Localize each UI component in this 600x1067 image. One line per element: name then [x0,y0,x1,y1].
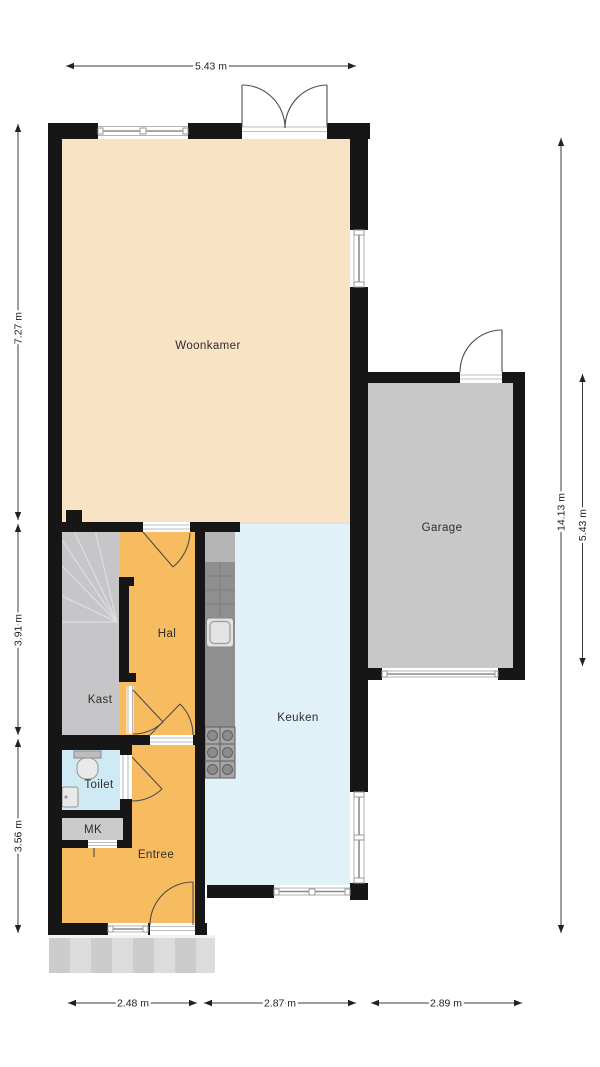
wall-step-notch [66,510,82,523]
room-woonkamer [62,139,350,523]
porch-stripe [175,935,196,973]
label-kast: Kast [88,694,113,706]
dim-label-bottom-3: 2.89 m [430,998,462,1010]
dim-label-left-1: 7.27 m [13,312,25,344]
dim-label-top: 5.43 m [195,61,227,73]
dim-label-right-2: 5.43 m [577,509,589,541]
wall-hal-kast-notch-top [119,577,134,586]
kitchen-counter [205,528,235,778]
label-garage: Garage [422,522,463,534]
floor-plan: 5.43 m 7.27 m 3.91 m 3.56 m 14.13 m 5.43… [0,0,600,1067]
wall-left [48,123,62,935]
wall-hal-kast [119,577,129,682]
stove-burners-icon [205,727,235,778]
porch-step-edge [49,935,215,938]
wall-garage-right [513,372,525,680]
door-garage [460,330,502,383]
toilet-wc-icon [74,751,101,779]
wall-toilet-top [62,735,120,750]
porch-stripe [91,935,112,973]
window-keuken-right [350,792,368,883]
dim-label-left-2: 3.91 m [13,614,25,646]
wall-hal-kast-notch-bottom [119,673,136,682]
label-woonkamer: Woonkamer [175,340,240,352]
label-keuken: Keuken [277,712,318,724]
window-woonkamer-top [98,123,188,139]
label-hal: Hal [158,628,176,640]
porch-stripe [49,935,70,973]
window-woonkamer-right [350,230,368,287]
window-garage-bottom [382,668,498,680]
room-entree [132,745,195,923]
window-entree-bottom [108,923,148,935]
door-french-woonkamer [242,85,327,139]
wall-hal-keuken [195,522,205,935]
hand-basin-icon [62,787,78,807]
floor-plan-svg: 5.43 m 7.27 m 3.91 m 3.56 m 14.13 m 5.43… [0,0,600,1067]
porch-stripe [133,935,154,973]
dim-label-bottom-2: 2.87 m [264,998,296,1010]
wall-toilet-bottom [62,810,132,818]
label-entree: Entree [138,849,174,861]
dim-label-bottom-1: 2.48 m [117,998,149,1010]
label-toilet: Toilet [84,779,114,791]
room-entree [62,848,132,923]
label-mk: MK [84,824,102,836]
kitchen-sink-icon [207,618,234,647]
window-keuken-bottom [274,885,350,898]
porch [49,935,215,973]
dim-label-right-1: 14.13 m [556,493,568,531]
dim-label-left-3: 3.56 m [13,820,25,852]
counter-worktop [205,528,235,562]
